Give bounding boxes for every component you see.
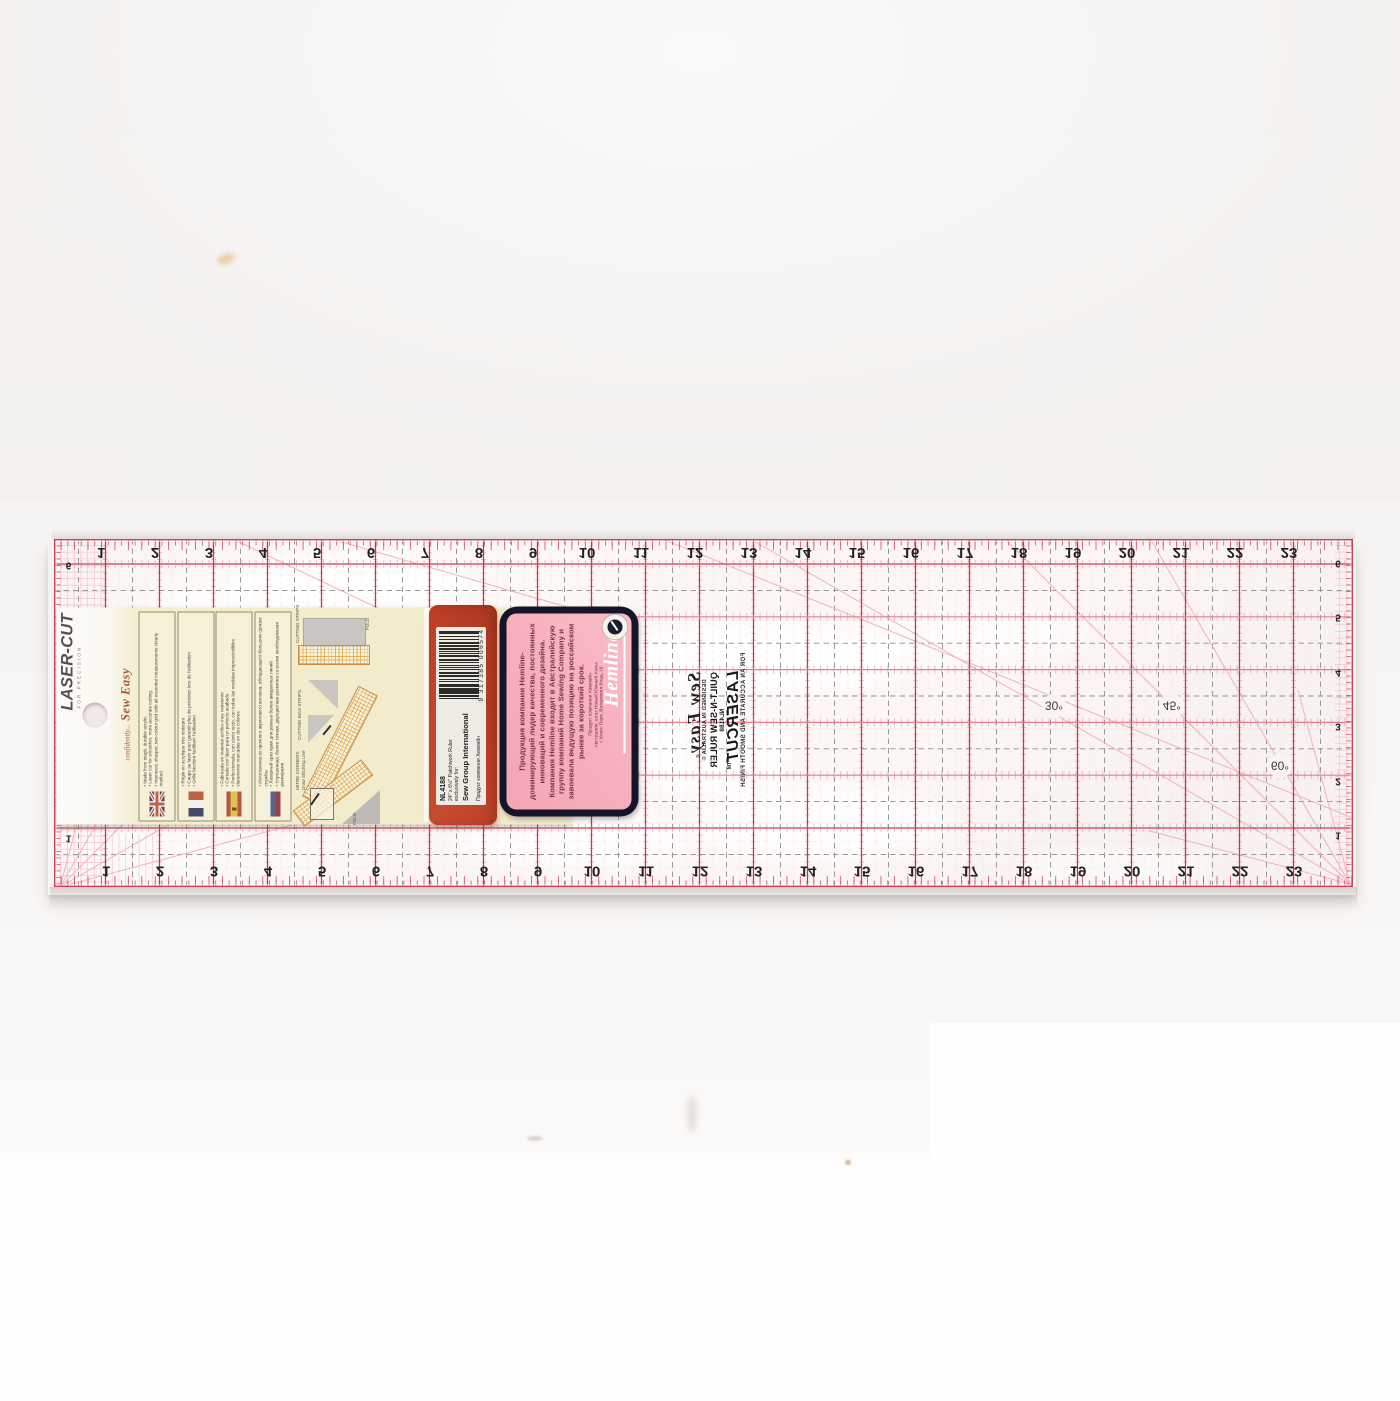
svg-text:23: 23 [1281, 544, 1298, 561]
svg-text:10: 10 [584, 863, 601, 880]
svg-text:9: 9 [534, 863, 542, 880]
svg-text:9: 9 [529, 544, 537, 561]
svg-text:45°: 45° [1163, 698, 1181, 712]
svg-text:6: 6 [1335, 557, 1341, 568]
svg-text:5: 5 [1335, 611, 1341, 622]
svg-text:3: 3 [205, 544, 213, 561]
svg-text:21: 21 [1178, 863, 1195, 880]
svg-text:12: 12 [687, 544, 704, 561]
svg-text:15: 15 [849, 544, 866, 561]
svg-text:17: 17 [957, 544, 974, 561]
svg-text:2: 2 [1335, 775, 1341, 786]
svg-text:6: 6 [66, 559, 72, 570]
svg-text:18: 18 [1011, 544, 1028, 561]
svg-text:1: 1 [97, 544, 105, 561]
svg-text:1: 1 [1335, 829, 1341, 840]
svg-text:8: 8 [480, 863, 488, 880]
svg-text:3: 3 [210, 863, 218, 880]
svg-text:13: 13 [746, 863, 763, 880]
svg-text:30°: 30° [1045, 698, 1063, 712]
svg-text:23: 23 [1286, 863, 1303, 880]
svg-text:19: 19 [1065, 544, 1082, 561]
svg-text:20: 20 [1119, 544, 1136, 561]
svg-text:4: 4 [1335, 666, 1341, 677]
svg-text:14: 14 [800, 863, 817, 880]
svg-text:4: 4 [264, 863, 273, 880]
svg-text:2: 2 [151, 544, 159, 561]
svg-text:5: 5 [313, 544, 321, 561]
svg-text:15: 15 [854, 863, 871, 880]
svg-text:18: 18 [1016, 863, 1033, 880]
svg-text:7: 7 [426, 863, 434, 880]
svg-text:6: 6 [372, 863, 380, 880]
svg-text:13: 13 [741, 544, 758, 561]
svg-text:11: 11 [638, 863, 654, 880]
svg-text:3: 3 [1335, 720, 1341, 731]
svg-text:6: 6 [367, 544, 375, 561]
svg-text:8: 8 [475, 544, 483, 561]
svg-text:16: 16 [903, 544, 920, 561]
svg-text:2: 2 [156, 863, 164, 880]
svg-text:11: 11 [633, 544, 649, 561]
svg-text:1: 1 [66, 832, 72, 843]
svg-text:1: 1 [102, 863, 110, 880]
svg-text:21: 21 [1173, 544, 1190, 561]
svg-text:12: 12 [692, 863, 709, 880]
svg-text:16: 16 [908, 863, 925, 880]
svg-text:5: 5 [318, 863, 326, 880]
svg-text:7: 7 [421, 544, 429, 561]
svg-text:4: 4 [259, 544, 268, 561]
svg-text:20: 20 [1124, 863, 1141, 880]
svg-text:60°: 60° [1271, 758, 1289, 772]
svg-text:14: 14 [795, 544, 812, 561]
svg-text:10: 10 [579, 544, 596, 561]
svg-text:17: 17 [962, 863, 979, 880]
svg-text:19: 19 [1070, 863, 1087, 880]
svg-text:22: 22 [1232, 863, 1249, 880]
svg-text:22: 22 [1227, 544, 1244, 561]
